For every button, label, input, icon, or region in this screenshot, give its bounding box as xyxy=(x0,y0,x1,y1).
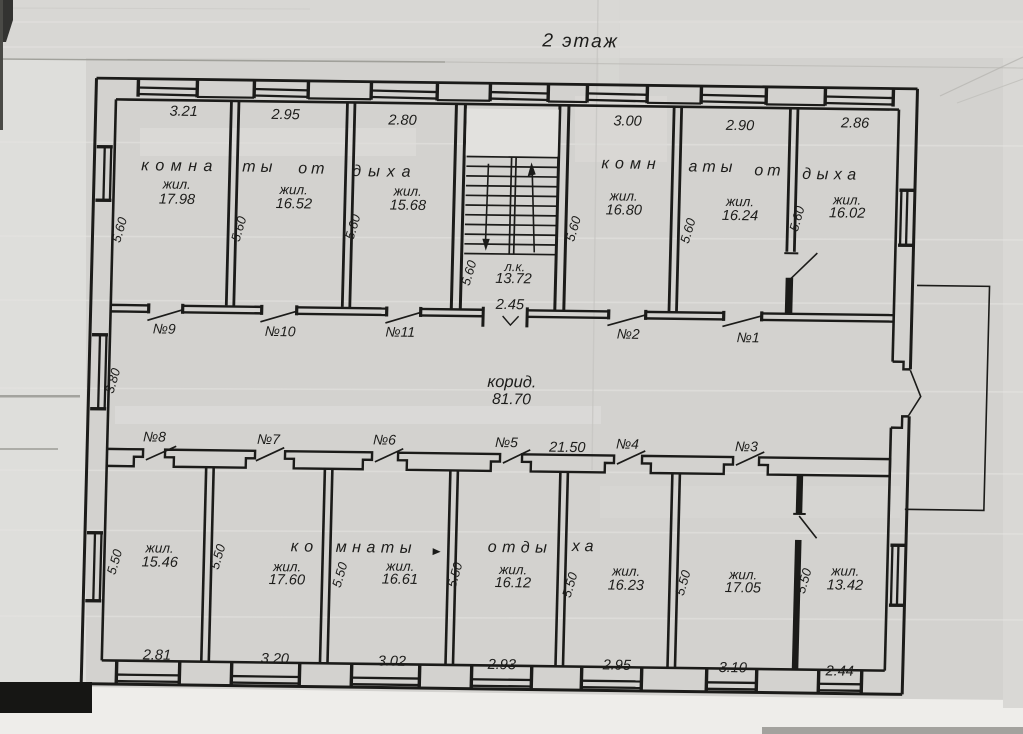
svg-text:16.02: 16.02 xyxy=(829,205,866,221)
svg-text:17.05: 17.05 xyxy=(724,580,762,596)
svg-text:3.00: 3.00 xyxy=(613,113,642,129)
svg-text:16.12: 16.12 xyxy=(495,575,532,591)
svg-text:2.95: 2.95 xyxy=(270,107,301,123)
svg-text:2.93: 2.93 xyxy=(486,657,516,673)
svg-text:3.10: 3.10 xyxy=(718,660,747,676)
svg-text:жил.: жил. xyxy=(162,177,192,192)
svg-text:№1: №1 xyxy=(736,329,759,345)
svg-text:№5: №5 xyxy=(495,434,519,450)
svg-text:дыха: дыха xyxy=(802,166,862,184)
svg-text:15.68: 15.68 xyxy=(390,198,427,214)
svg-text:комн: комн xyxy=(601,155,662,173)
svg-text:корид.: корид. xyxy=(487,373,536,392)
svg-text:от: от xyxy=(298,160,329,177)
svg-text:16.52: 16.52 xyxy=(276,196,313,212)
svg-text:16.24: 16.24 xyxy=(722,208,759,224)
svg-text:аты: аты xyxy=(688,158,737,176)
svg-text:№9: №9 xyxy=(153,320,177,336)
svg-text:17.98: 17.98 xyxy=(159,191,196,207)
svg-text:16.61: 16.61 xyxy=(382,572,419,588)
svg-text:3.21: 3.21 xyxy=(169,104,198,120)
svg-text:дыха: дыха xyxy=(352,163,418,181)
svg-text:ты: ты xyxy=(242,159,278,176)
svg-text:№11: №11 xyxy=(385,323,415,339)
svg-text:от: от xyxy=(754,162,785,179)
svg-text:2.81: 2.81 xyxy=(142,647,172,663)
svg-text:2.44: 2.44 xyxy=(824,663,854,679)
svg-text:2.45: 2.45 xyxy=(495,297,526,313)
svg-text:ко: ко xyxy=(290,538,319,555)
svg-text:2.80: 2.80 xyxy=(387,112,417,128)
svg-text:№3: №3 xyxy=(735,438,759,454)
svg-text:2 этаж: 2 этаж xyxy=(541,30,619,52)
svg-text:21.50: 21.50 xyxy=(548,440,586,456)
svg-text:№10: №10 xyxy=(265,323,296,339)
svg-text:16.23: 16.23 xyxy=(607,577,644,593)
svg-text:81.70: 81.70 xyxy=(492,391,532,409)
svg-text:2.86: 2.86 xyxy=(840,115,871,131)
svg-text:отды: отды xyxy=(488,539,553,557)
svg-text:№6: №6 xyxy=(373,431,397,447)
svg-text:2.95: 2.95 xyxy=(601,657,632,673)
svg-text:17.60: 17.60 xyxy=(269,572,306,588)
svg-text:комна: комна xyxy=(141,157,219,175)
svg-text:3.02: 3.02 xyxy=(378,653,407,669)
svg-text:№4: №4 xyxy=(616,436,640,452)
svg-text:№7: №7 xyxy=(257,431,282,447)
svg-text:3.20: 3.20 xyxy=(261,651,290,667)
svg-text:ха: ха xyxy=(571,538,599,555)
svg-text:16.80: 16.80 xyxy=(605,202,642,218)
svg-text:15.46: 15.46 xyxy=(141,554,179,570)
svg-text:№2: №2 xyxy=(617,326,641,342)
svg-text:мнаты: мнаты xyxy=(335,539,417,557)
svg-text:2.90: 2.90 xyxy=(725,118,755,134)
svg-text:13.42: 13.42 xyxy=(827,577,864,593)
svg-text:13.72: 13.72 xyxy=(495,271,532,287)
svg-text:№8: №8 xyxy=(143,428,167,444)
